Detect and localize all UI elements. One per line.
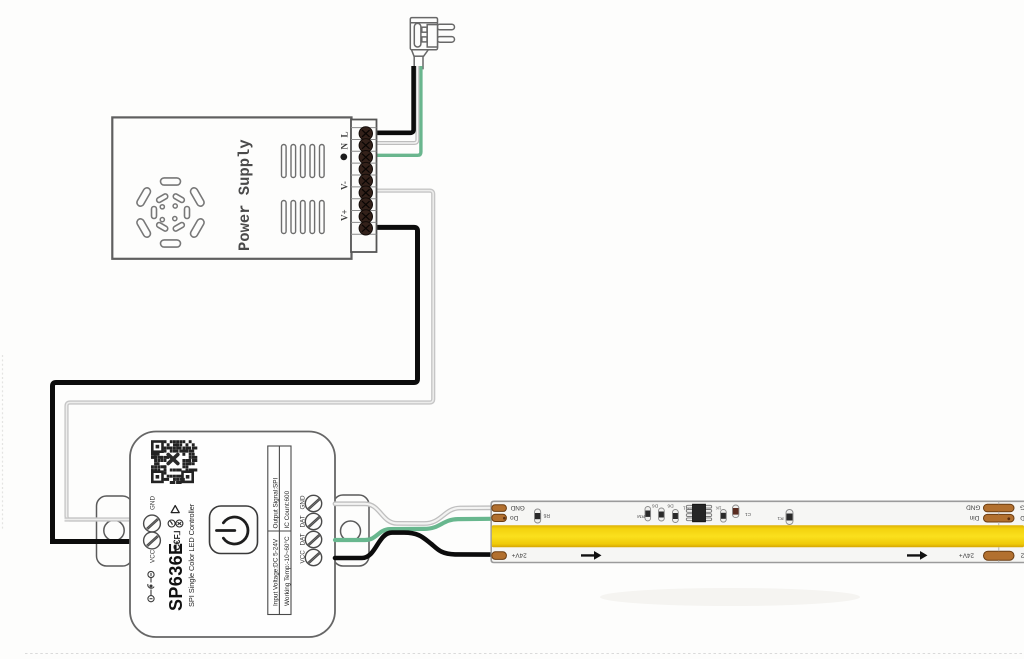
svg-text:DAT: DAT — [300, 515, 307, 527]
svg-text:GND: GND — [966, 504, 981, 511]
svg-text:24V+: 24V+ — [511, 551, 526, 558]
svg-text:DAT: DAT — [300, 533, 307, 545]
svg-text:1K: 1K — [715, 504, 722, 510]
svg-text:D6: D6 — [652, 503, 658, 509]
svg-text:RM: RM — [637, 513, 644, 519]
svg-text:D: D — [1020, 514, 1024, 521]
svg-text:D6: D6 — [667, 503, 673, 509]
svg-text:C€: C€ — [172, 540, 182, 551]
svg-text:24V+: 24V+ — [959, 551, 974, 558]
svg-text:VCC: VCC — [300, 550, 307, 564]
svg-text:L: L — [340, 131, 350, 137]
svg-text:GND: GND — [510, 504, 525, 511]
svg-text:Output Signal:SPI: Output Signal:SPI — [272, 477, 279, 528]
svg-text:SPI Single Color LED Controlle: SPI Single Color LED Controller — [187, 503, 196, 607]
svg-text:Do: Do — [510, 514, 519, 521]
svg-text:R6: R6 — [543, 512, 550, 518]
svg-text:GND: GND — [300, 495, 307, 509]
svg-text:F⅃: F⅃ — [172, 530, 182, 539]
svg-text:G: G — [1020, 504, 1024, 511]
svg-text:N: N — [340, 143, 350, 150]
svg-text:C1: C1 — [745, 511, 751, 517]
svg-text:Power Supply: Power Supply — [236, 139, 254, 251]
svg-text:V-: V- — [340, 181, 350, 190]
svg-text:Input Voltage:DC 5-24V: Input Voltage:DC 5-24V — [272, 538, 279, 606]
svg-text:Din: Din — [969, 514, 979, 521]
svg-text:IC Count:600: IC Count:600 — [284, 490, 291, 528]
svg-text:R1: R1 — [777, 515, 783, 521]
svg-text:GND: GND — [150, 496, 157, 510]
svg-text:SP636E: SP636E — [166, 543, 186, 611]
svg-text:V+: V+ — [340, 209, 350, 221]
svg-text:Working Temp:-10~60°C: Working Temp:-10~60°C — [283, 536, 291, 606]
svg-text:VCC: VCC — [150, 549, 157, 563]
svg-text:2: 2 — [1020, 551, 1024, 558]
